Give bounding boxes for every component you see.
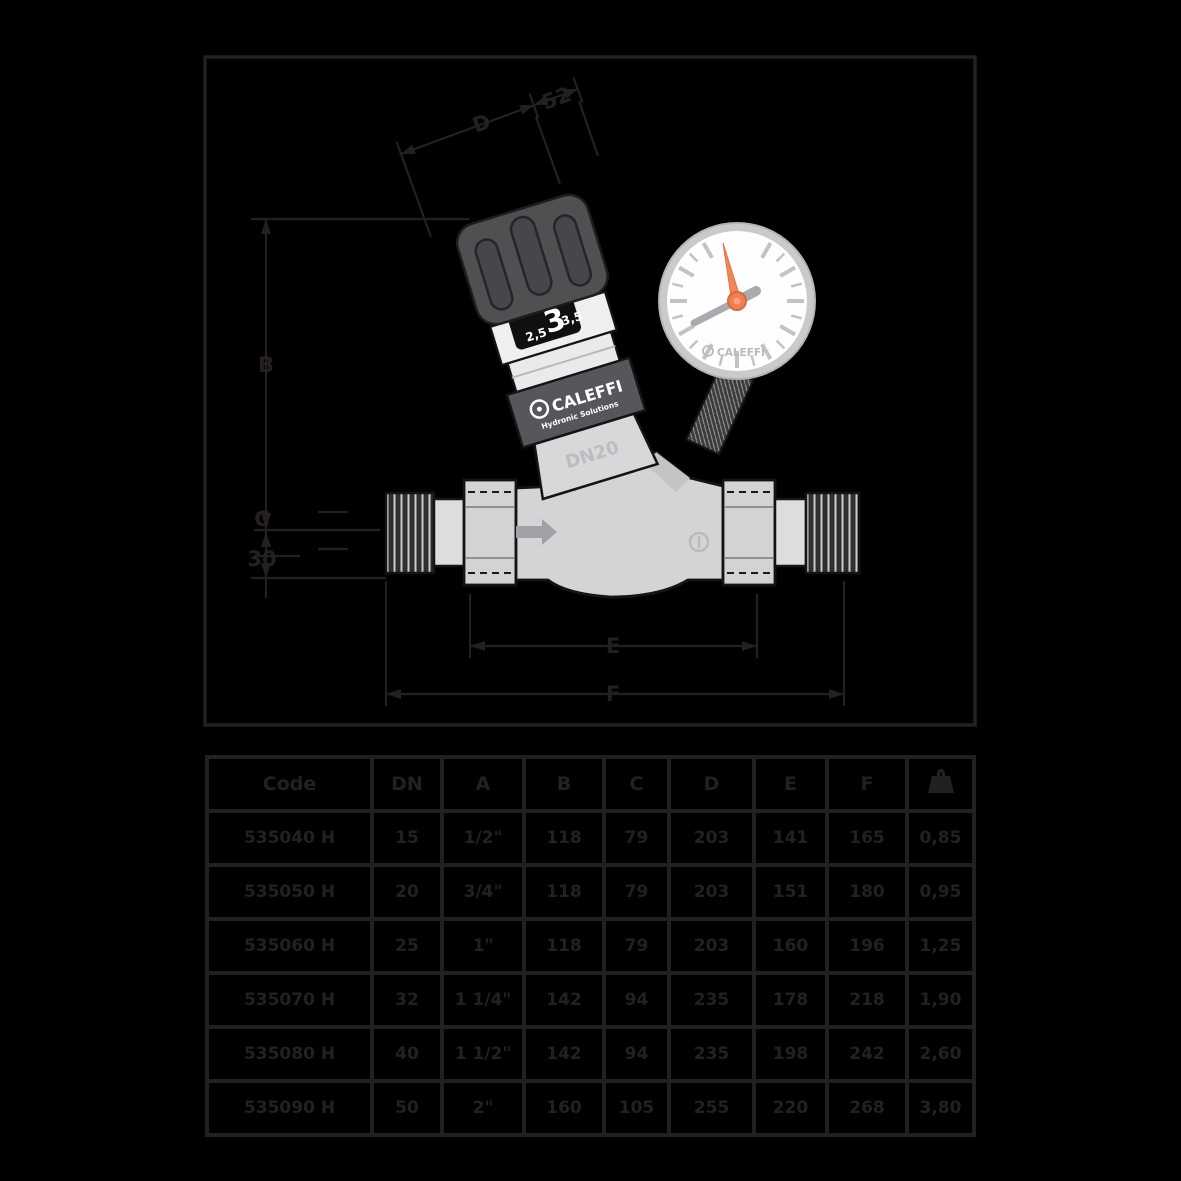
table-row: 535040 H151/2"118792031411650,85 xyxy=(207,811,974,865)
value-cell: 268 xyxy=(827,1081,907,1135)
column-header-dn: DN xyxy=(372,757,442,811)
column-header-code: Code xyxy=(207,757,372,811)
table-row: 535090 H502"1601052552202683,80 xyxy=(207,1081,974,1135)
value-cell: 1" xyxy=(442,919,524,973)
value-cell: 1,90 xyxy=(907,973,974,1027)
value-cell: 165 xyxy=(827,811,907,865)
value-cell: 235 xyxy=(669,1027,754,1081)
value-cell: 20 xyxy=(372,865,442,919)
value-cell: 0,85 xyxy=(907,811,974,865)
column-header-c: C xyxy=(604,757,669,811)
value-cell: 118 xyxy=(524,811,604,865)
left-tailpiece xyxy=(434,499,465,566)
technical-drawing-page: DN20 CALEFFI Hydronic Solutions 2,5 3 3,… xyxy=(0,0,1181,1181)
weight-icon xyxy=(924,767,958,797)
left-thread xyxy=(386,493,434,573)
value-cell: 1 1/2" xyxy=(442,1027,524,1081)
value-cell: 198 xyxy=(754,1027,827,1081)
value-cell: 118 xyxy=(524,865,604,919)
value-cell: 79 xyxy=(604,919,669,973)
value-cell: 160 xyxy=(524,1081,604,1135)
cartridge-assembly: DN20 CALEFFI Hydronic Solutions 2,5 3 3,… xyxy=(452,190,665,501)
column-header-d: D xyxy=(669,757,754,811)
code-cell: 535040 H xyxy=(207,811,372,865)
table-row: 535050 H203/4"118792031511800,95 xyxy=(207,865,974,919)
value-cell: 1/2" xyxy=(442,811,524,865)
value-cell: 151 xyxy=(754,865,827,919)
value-cell: 220 xyxy=(754,1081,827,1135)
dim-label-D: D xyxy=(469,109,494,138)
value-cell: 118 xyxy=(524,919,604,973)
value-cell: 196 xyxy=(827,919,907,973)
column-header-a: A xyxy=(442,757,524,811)
right-tailpiece xyxy=(775,499,806,566)
dimension-table: CodeDNABCDEF 535040 H151/2"1187920314116… xyxy=(205,755,976,1137)
table-row: 535060 H251"118792031601961,25 xyxy=(207,919,974,973)
value-cell: 203 xyxy=(669,865,754,919)
value-cell: 142 xyxy=(524,1027,604,1081)
value-cell: 242 xyxy=(827,1027,907,1081)
code-cell: 535080 H xyxy=(207,1027,372,1081)
value-cell: 40 xyxy=(372,1027,442,1081)
code-cell: 535090 H xyxy=(207,1081,372,1135)
value-cell: 94 xyxy=(604,1027,669,1081)
dim-label-E: E xyxy=(606,634,620,658)
gauge-brand-text: CALEFFI xyxy=(717,347,765,359)
table-header-row: CodeDNABCDEF xyxy=(207,757,974,811)
value-cell: 178 xyxy=(754,973,827,1027)
value-cell: 255 xyxy=(669,1081,754,1135)
right-thread xyxy=(806,493,859,573)
value-cell: 3/4" xyxy=(442,865,524,919)
pressure-gauge: CALEFFI xyxy=(659,223,815,379)
column-header-f: F xyxy=(827,757,907,811)
code-cell: 535070 H xyxy=(207,973,372,1027)
value-cell: 32 xyxy=(372,973,442,1027)
column-header-e: E xyxy=(754,757,827,811)
value-cell: 2,60 xyxy=(907,1027,974,1081)
dim-label-C: C xyxy=(254,507,269,531)
value-cell: 218 xyxy=(827,973,907,1027)
left-union-nut xyxy=(464,480,516,585)
value-cell: 79 xyxy=(604,811,669,865)
value-cell: 235 xyxy=(669,973,754,1027)
right-union-nut xyxy=(723,480,775,585)
dim-label-52: 52 xyxy=(539,82,575,115)
value-cell: 142 xyxy=(524,973,604,1027)
value-cell: 160 xyxy=(754,919,827,973)
column-header-weight xyxy=(907,757,974,811)
value-cell: 203 xyxy=(669,811,754,865)
value-cell: 94 xyxy=(604,973,669,1027)
dim-label-30: 30 xyxy=(247,547,276,571)
value-cell: 3,80 xyxy=(907,1081,974,1135)
value-cell: 2" xyxy=(442,1081,524,1135)
table-row: 535080 H401 1/2"142942351982422,60 xyxy=(207,1027,974,1081)
valve-illustration: DN20 CALEFFI Hydronic Solutions 2,5 3 3,… xyxy=(386,190,859,597)
value-cell: 203 xyxy=(669,919,754,973)
code-cell: 535050 H xyxy=(207,865,372,919)
value-cell: 1,25 xyxy=(907,919,974,973)
value-cell: 1 1/4" xyxy=(442,973,524,1027)
value-cell: 15 xyxy=(372,811,442,865)
code-cell: 535060 H xyxy=(207,919,372,973)
value-cell: 0,95 xyxy=(907,865,974,919)
value-cell: 141 xyxy=(754,811,827,865)
value-cell: 79 xyxy=(604,865,669,919)
value-cell: 25 xyxy=(372,919,442,973)
dim-label-F: F xyxy=(606,682,620,706)
table-row: 535070 H321 1/4"142942351782181,90 xyxy=(207,973,974,1027)
dim-label-B: B xyxy=(258,353,274,377)
value-cell: 50 xyxy=(372,1081,442,1135)
value-cell: 180 xyxy=(827,865,907,919)
column-header-b: B xyxy=(524,757,604,811)
value-cell: 105 xyxy=(604,1081,669,1135)
